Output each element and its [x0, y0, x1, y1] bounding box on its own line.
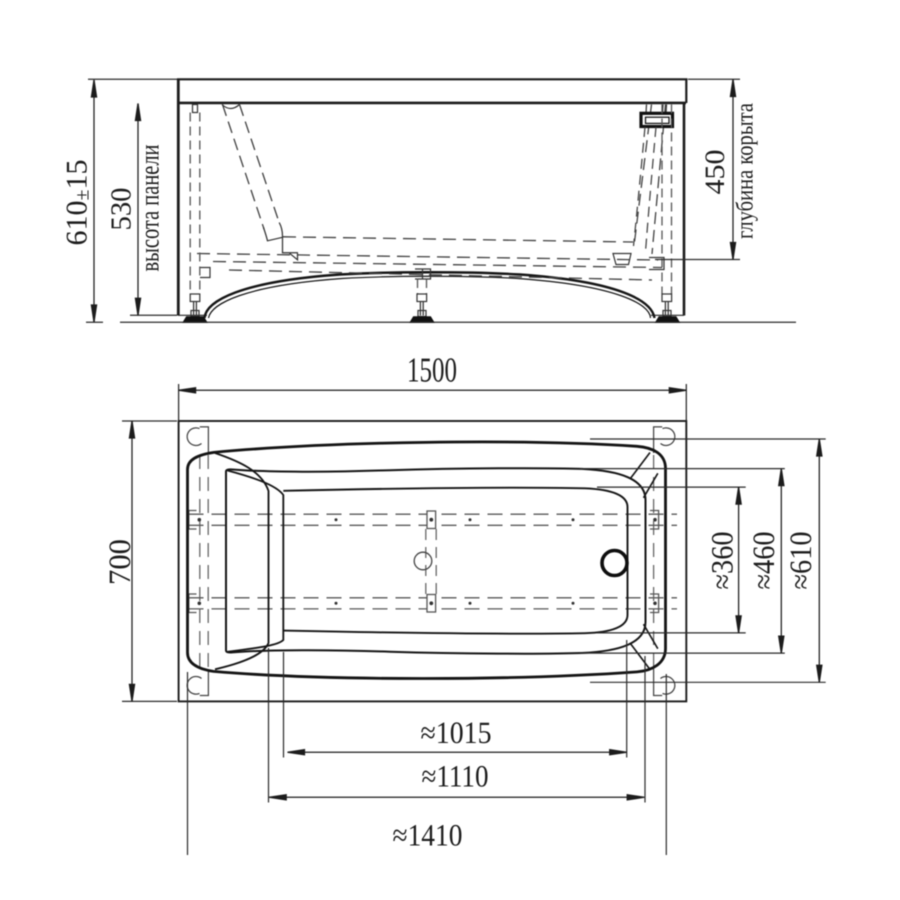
svg-text:610±15: 610±15 — [61, 160, 94, 246]
svg-text:≈1410: ≈1410 — [393, 818, 463, 853]
svg-text:глубина корыта: глубина корыта — [733, 103, 759, 239]
svg-text:450: 450 — [700, 150, 731, 195]
svg-text:1500: 1500 — [407, 351, 457, 390]
svg-text:≈610: ≈610 — [783, 532, 818, 590]
svg-text:≈360: ≈360 — [705, 532, 740, 590]
svg-text:высота панели: высота панели — [135, 145, 165, 272]
svg-text:≈460: ≈460 — [746, 532, 781, 590]
svg-text:530: 530 — [106, 188, 138, 231]
svg-text:700: 700 — [102, 539, 137, 585]
svg-text:≈1110: ≈1110 — [422, 759, 489, 794]
svg-text:≈1015: ≈1015 — [421, 715, 492, 750]
